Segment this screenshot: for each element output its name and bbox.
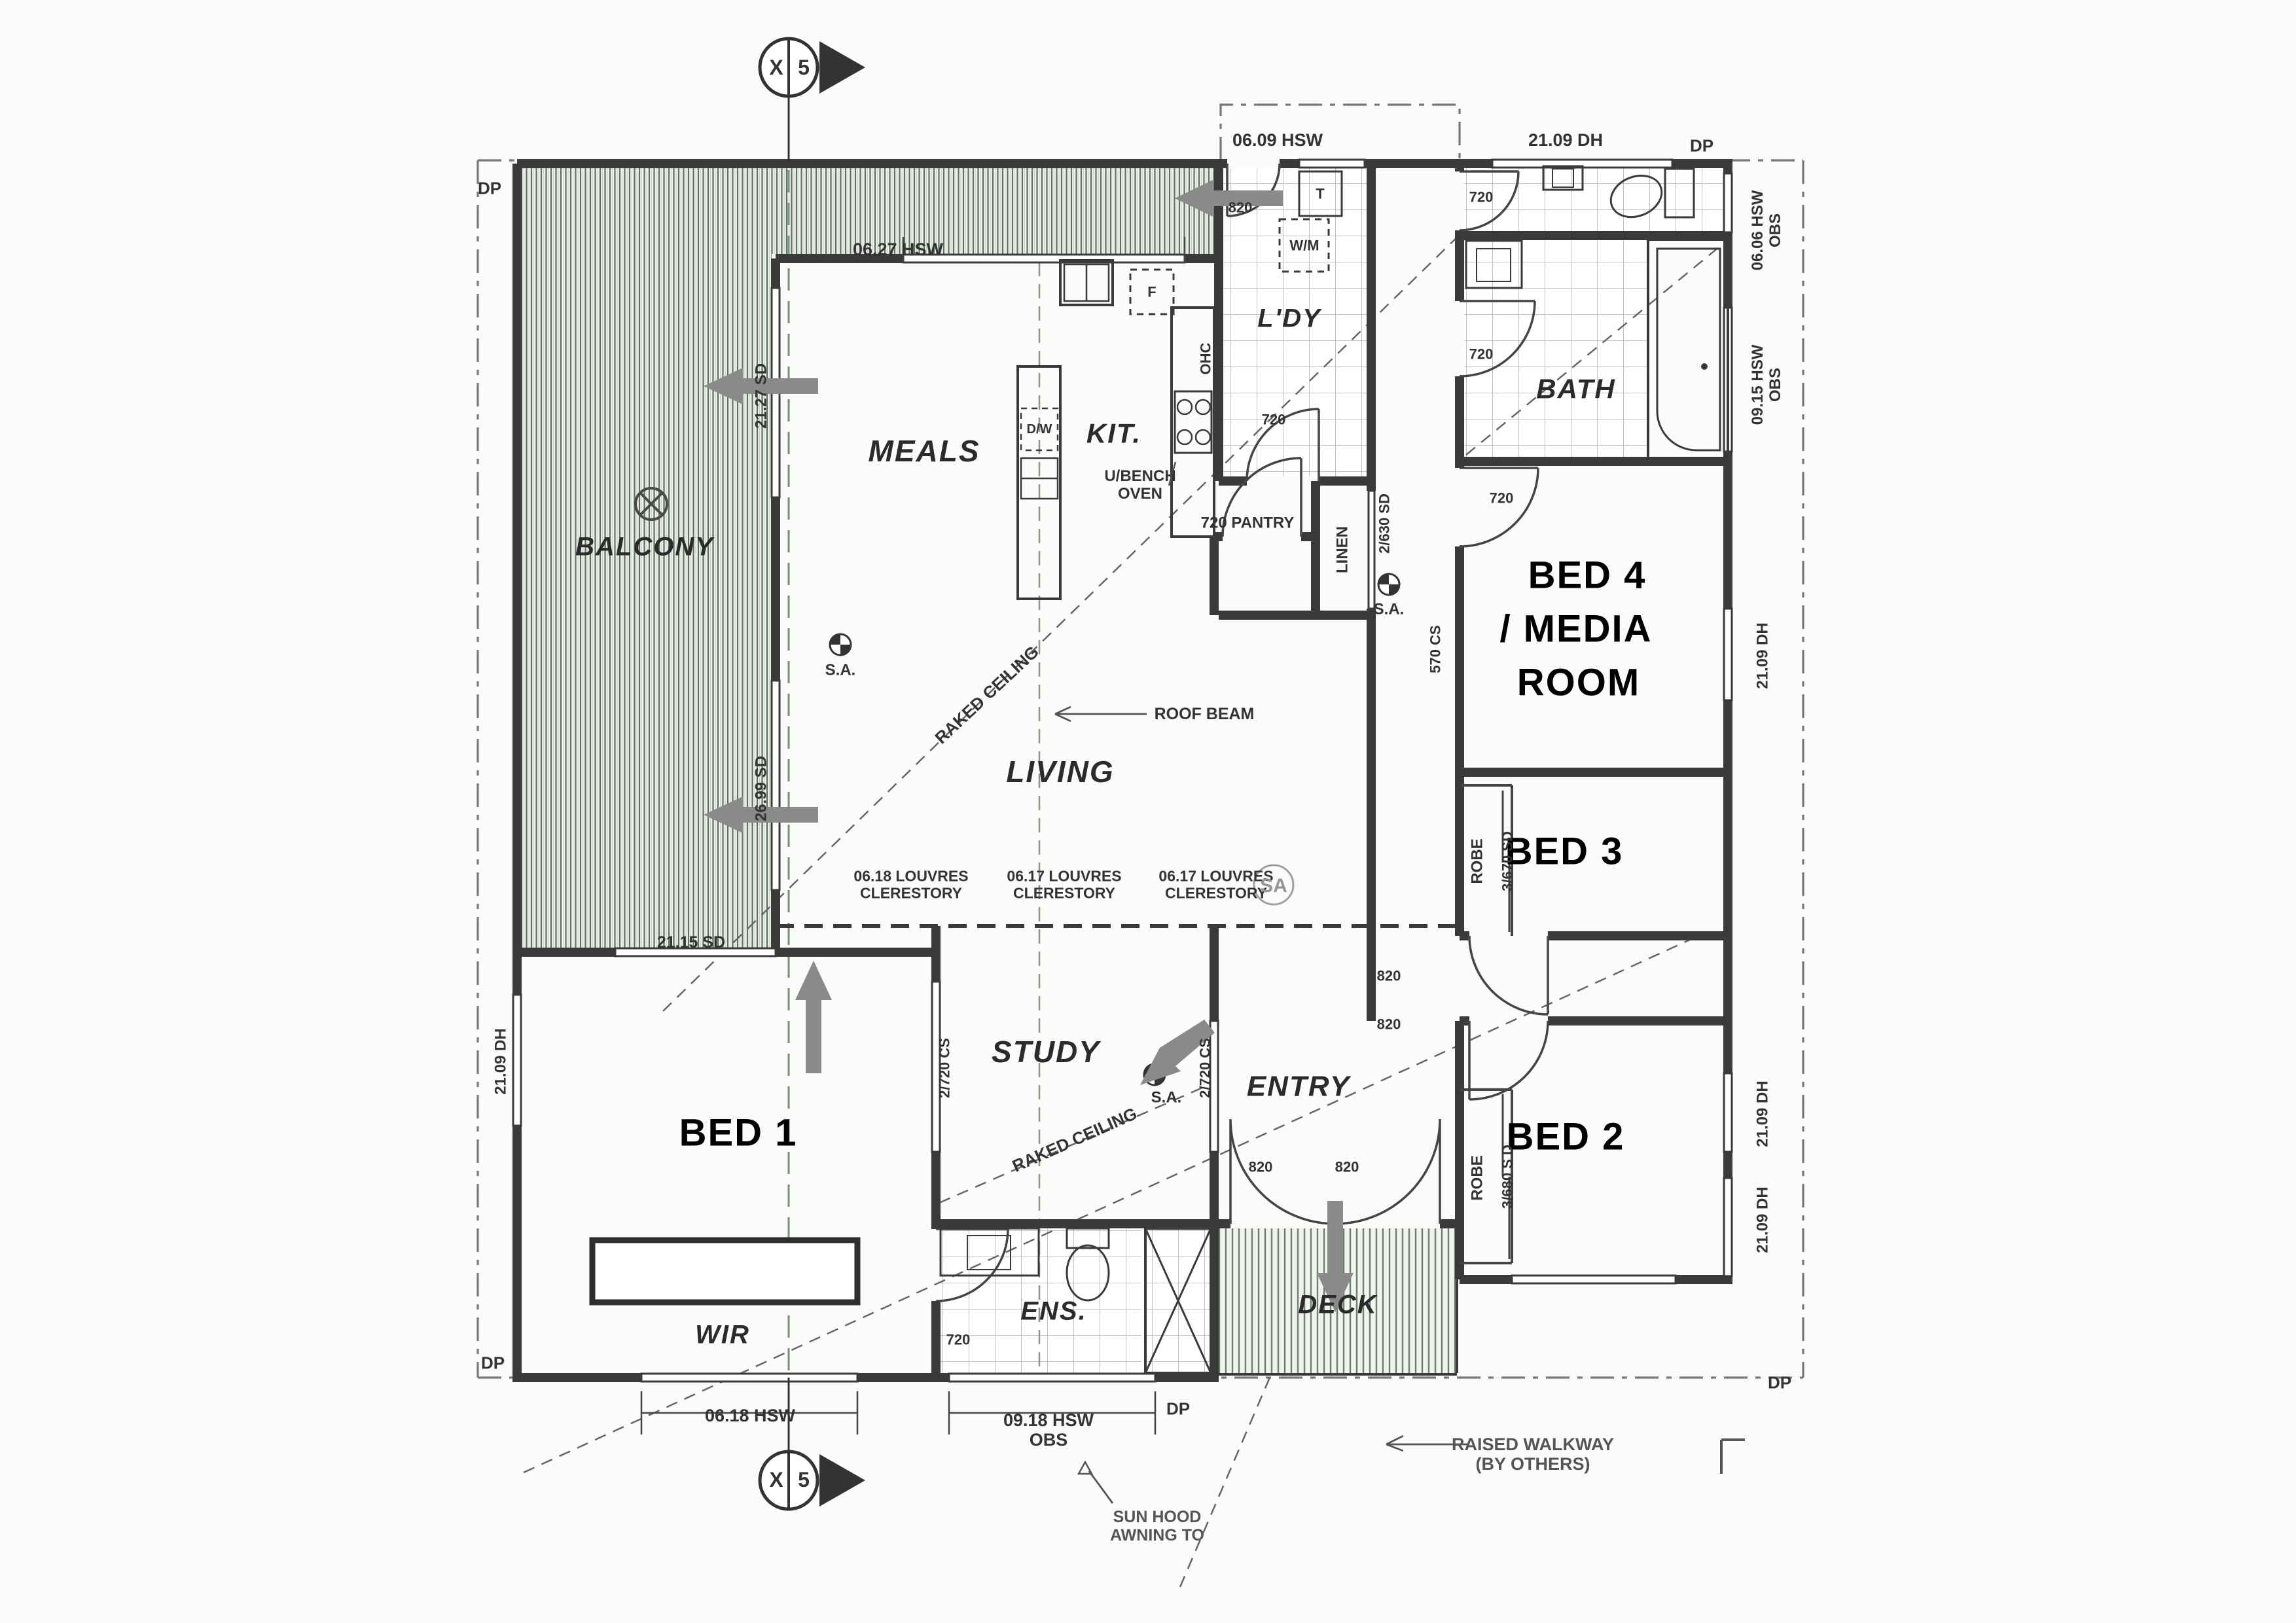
label-marker-bot-5: 5	[798, 1469, 810, 1492]
label-bed4-3: ROOM	[1517, 662, 1640, 705]
label-marker-top-5: 5	[798, 56, 810, 80]
label-win-0609: 06.09 HSW	[1232, 130, 1323, 150]
label-walkway: RAISED WALKWAY (BY OTHERS)	[1452, 1435, 1614, 1474]
label-sa-hall: S.A.	[1374, 601, 1405, 619]
label-win-0618: 06.18 HSW	[705, 1406, 795, 1425]
label-win-0627: 06.27 HSW	[853, 240, 943, 259]
label-d720-bed4: 720	[1490, 491, 1514, 507]
label-d720-bath: 720	[1469, 347, 1494, 363]
label-dp-ens: DP	[1166, 1399, 1190, 1418]
label-win-0915: 09.15 HSW OBS	[1749, 345, 1785, 425]
label-dp-bl: DP	[481, 1353, 505, 1372]
label-sd-2127: 21.27 SD	[753, 363, 771, 429]
label-dp-tr: DP	[1690, 136, 1713, 155]
label-dh-r2: 21.09 DH	[1755, 1080, 1772, 1147]
label-ldy: L'DY	[1257, 304, 1321, 334]
label-dh-left: 21.09 DH	[493, 1028, 511, 1094]
label-sa-stamp: SA	[1260, 875, 1287, 897]
label-clere-2: 06.17 LOUVRES CLERESTORY	[1007, 868, 1121, 902]
label-roofbeam: ROOF BEAM	[1155, 705, 1255, 723]
label-robe-bed2: ROBE	[1469, 1155, 1487, 1200]
label-dh-r3: 21.09 DH	[1755, 1186, 1772, 1253]
label-win-2109-top: 21.09 DH	[1528, 130, 1603, 150]
label-d820-ldy: 820	[1229, 200, 1253, 217]
label-clere-3: 06.17 LOUVRES CLERESTORY	[1158, 868, 1273, 902]
label-sa-living: S.A.	[825, 662, 856, 680]
label-ohc: OHC	[1198, 343, 1215, 375]
label-cs-2720a: 2/720 CS	[937, 1038, 954, 1098]
labels-layer: BED 4/ MEDIAROOMBED 3BED 2BED 1BALCONYME…	[0, 0, 2296, 1623]
label-d720-ldy: 720	[1262, 412, 1286, 429]
label-clere-1: 06.18 LOUVRES CLERESTORY	[853, 868, 968, 902]
label-meals: MEALS	[869, 435, 980, 469]
label-entry: ENTRY	[1247, 1070, 1350, 1102]
label-d820-entry2: 820	[1335, 1160, 1359, 1176]
label-wir: WIR	[695, 1321, 750, 1350]
label-d820-entry1: 820	[1249, 1160, 1273, 1176]
label-sd-3670: 3/670 SD	[1500, 831, 1516, 891]
label-marker-bot-x: X	[769, 1469, 783, 1492]
label-ubench: U/BENCH OVEN	[1104, 468, 1175, 503]
label-dp-br: DP	[1768, 1373, 1791, 1392]
label-d820-bed2: 820	[1377, 1017, 1401, 1033]
label-dh-r1: 21.09 DH	[1755, 622, 1772, 688]
label-living: LIVING	[1006, 755, 1114, 789]
label-d720-ens: 720	[946, 1332, 971, 1349]
label-fridge: F	[1147, 285, 1156, 301]
label-wm: W/M	[1289, 238, 1319, 255]
label-d720-wc: 720	[1469, 190, 1494, 206]
label-balcony: BALCONY	[575, 533, 714, 562]
label-raked-living: RAKED CEILING	[931, 642, 1043, 747]
label-win-0918: 09.18 HSW OBS	[1003, 1410, 1094, 1450]
label-sunhood: SUN HOOD AWNING TO	[1110, 1508, 1204, 1544]
label-robe-bed3: ROBE	[1469, 838, 1487, 883]
label-bed3: BED 3	[1505, 831, 1624, 874]
label-d820-bed3: 820	[1377, 969, 1401, 985]
label-bed4-1: BED 4	[1528, 555, 1647, 597]
label-deck: DECK	[1298, 1291, 1377, 1320]
label-win-0606: 06.06 HSW OBS	[1749, 190, 1785, 271]
label-sd-2699: 26.99 SD	[753, 756, 771, 821]
label-sd-3680: 3/680 S D	[1500, 1145, 1516, 1209]
floor-plan-page: BED 4/ MEDIAROOMBED 3BED 2BED 1BALCONYME…	[0, 0, 2296, 1623]
label-cs-570: 570 CS	[1428, 625, 1444, 673]
label-study: STUDY	[992, 1035, 1100, 1069]
label-bed2: BED 2	[1507, 1116, 1625, 1159]
label-bed4-2: / MEDIA	[1499, 609, 1652, 651]
label-trough: T	[1316, 187, 1324, 203]
label-sa-entry: S.A.	[1151, 1090, 1182, 1107]
label-pantry: 720 PANTRY	[1201, 515, 1295, 533]
label-cs-2720b: 2/720 CS	[1198, 1038, 1214, 1098]
label-raked-study: RAKED CEILING	[1009, 1104, 1139, 1176]
label-bed1: BED 1	[679, 1113, 798, 1155]
label-linen: LINEN	[1335, 526, 1352, 573]
label-kit: KIT.	[1086, 418, 1141, 448]
label-marker-top-x: X	[769, 56, 783, 80]
label-bath: BATH	[1536, 373, 1616, 404]
label-dw: D/W	[1027, 422, 1052, 437]
label-sd-2115: 21.15 SD	[657, 933, 725, 952]
label-ens: ENS.	[1020, 1297, 1086, 1327]
label-sd-2630: 2/630 SD	[1377, 493, 1393, 554]
label-dp-tl: DP	[478, 179, 501, 198]
